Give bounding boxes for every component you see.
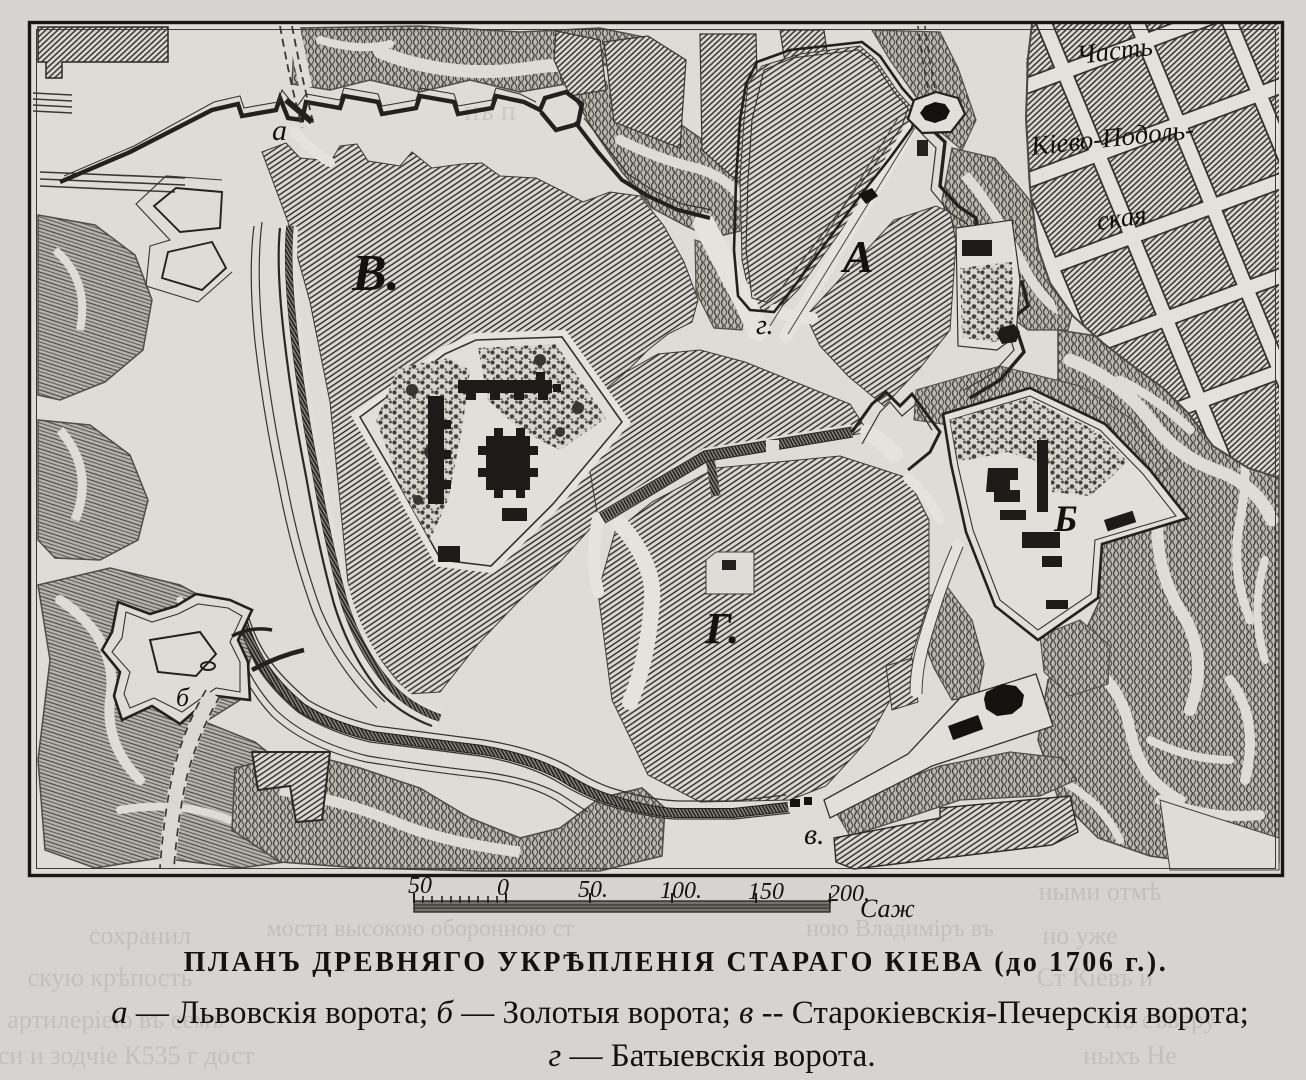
svg-text:а: а <box>272 114 287 147</box>
svg-text:Г.: Г. <box>704 604 739 653</box>
svg-text:в.: в. <box>804 818 825 851</box>
svg-text:ныхъ Не: ныхъ Не <box>1083 1041 1177 1070</box>
svg-text:тописи и зодчіе К535 г дост: тописи и зодчіе К535 г дост <box>0 1041 254 1070</box>
svg-text:А: А <box>840 231 874 282</box>
svg-text:100.: 100. <box>660 878 702 904</box>
svg-text:ными отмѣ: ными отмѣ <box>1039 877 1162 906</box>
svg-text:Б: Б <box>1053 499 1078 540</box>
svg-text:сохранил: сохранил <box>89 921 191 950</box>
svg-text:г — Батыевскія ворота.: г — Батыевскія ворота. <box>548 1038 875 1074</box>
svg-text:ПЛАНЪ ДРЕВНЯГО УКРѢПЛЕНІЯ С: ПЛАНЪ ДРЕВНЯГО УКРѢПЛЕНІЯ СТАРАГО КІЕВА … <box>184 947 1169 978</box>
svg-text:г.: г. <box>756 310 774 341</box>
svg-text:б: б <box>176 683 190 712</box>
svg-text:мости высокою оборонною ст: мости высокою оборонною ст <box>266 916 574 942</box>
svg-text:В.: В. <box>351 245 400 302</box>
svg-text:0: 0 <box>497 875 509 901</box>
svg-text:скую крѣпость: скую крѣпость <box>28 963 193 992</box>
svg-text:Саж: Саж <box>860 894 915 923</box>
svg-text:50.: 50. <box>578 877 608 903</box>
svg-text:но уже: но уже <box>1042 921 1117 950</box>
svg-text:а — Львовскія ворота; б — Золо: а — Львовскія ворота; б — Золотыя ворота… <box>111 995 1249 1031</box>
